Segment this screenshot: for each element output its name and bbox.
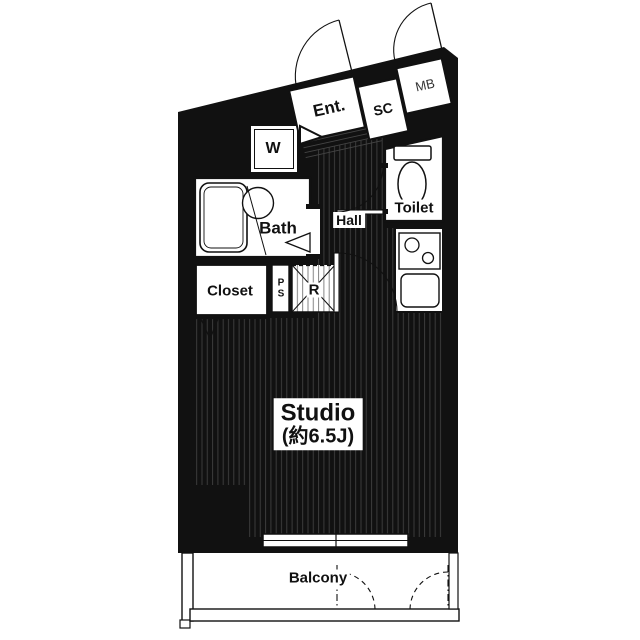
kitchen-sink-icon xyxy=(401,274,439,307)
balcony-window xyxy=(263,534,408,547)
bath-room xyxy=(195,178,320,259)
kitchen-counter xyxy=(395,228,443,312)
stove-burner-large xyxy=(405,238,419,252)
label-refrigerator: R xyxy=(307,283,322,298)
floorplan: Ent. SC MB W Bath Hall Toilet Closet P S… xyxy=(0,0,640,640)
bathtub-icon xyxy=(200,183,247,252)
toilet-door-jamb-top xyxy=(381,163,388,168)
bath-door-jamb-top xyxy=(306,204,320,209)
meter-box-door-leaf xyxy=(431,3,442,50)
label-pipe-space: P S xyxy=(278,279,285,300)
studio-label-group: Studio (約6.5J) xyxy=(274,398,363,450)
label-studio: Studio xyxy=(281,400,356,426)
stove-burner-small xyxy=(423,253,434,264)
label-closet: Closet xyxy=(207,284,253,299)
balcony-partition-arc-right xyxy=(410,572,448,610)
label-shoe-cupboard: SC xyxy=(372,100,394,118)
label-washer: W xyxy=(265,141,280,157)
label-bath: Bath xyxy=(259,220,297,237)
label-balcony: Balcony xyxy=(286,570,350,587)
floorplan-drawing xyxy=(0,0,640,640)
balcony-left-foot xyxy=(180,620,190,628)
stove-icon xyxy=(399,233,440,269)
entrance-door-leaf xyxy=(339,20,353,76)
label-toilet: Toilet xyxy=(392,200,437,217)
wash-basin-icon xyxy=(243,188,274,219)
label-meter-box: MB xyxy=(414,77,436,94)
toilet-tank-icon xyxy=(394,146,431,160)
label-hall: Hall xyxy=(333,212,365,228)
balcony-area xyxy=(180,553,459,628)
label-studio-size: (約6.5J) xyxy=(281,426,356,448)
studio-door-leaf xyxy=(334,253,339,312)
balcony-rail xyxy=(190,609,459,621)
balcony-right-pillar xyxy=(449,553,458,609)
bath-door-jamb-bottom xyxy=(306,254,320,259)
